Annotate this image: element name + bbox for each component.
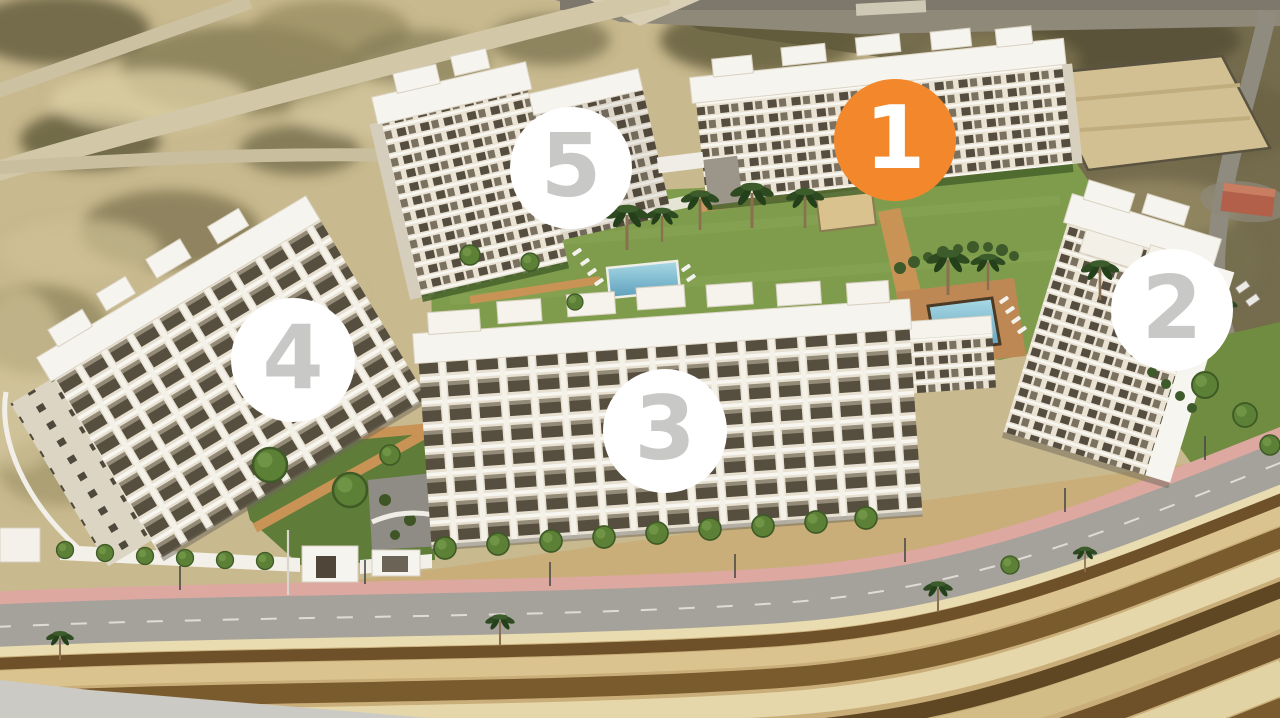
phase-number: 3: [634, 385, 695, 473]
phase-number: 4: [262, 314, 323, 402]
phase-number: 2: [1142, 265, 1203, 352]
phase-number: 1: [865, 95, 926, 182]
phase-badge-2[interactable]: 2: [1111, 249, 1233, 371]
phase-badge-5[interactable]: 5: [510, 107, 632, 229]
phase-badge-3[interactable]: 3: [603, 369, 727, 493]
phase-badge-4[interactable]: 4: [231, 298, 355, 422]
phase-number: 5: [541, 123, 602, 210]
phase-badge-1[interactable]: 1: [834, 79, 956, 201]
aerial-render-screenshot: 1 2 3 4 5: [0, 0, 1280, 718]
site-aerial-render: [0, 0, 1280, 718]
